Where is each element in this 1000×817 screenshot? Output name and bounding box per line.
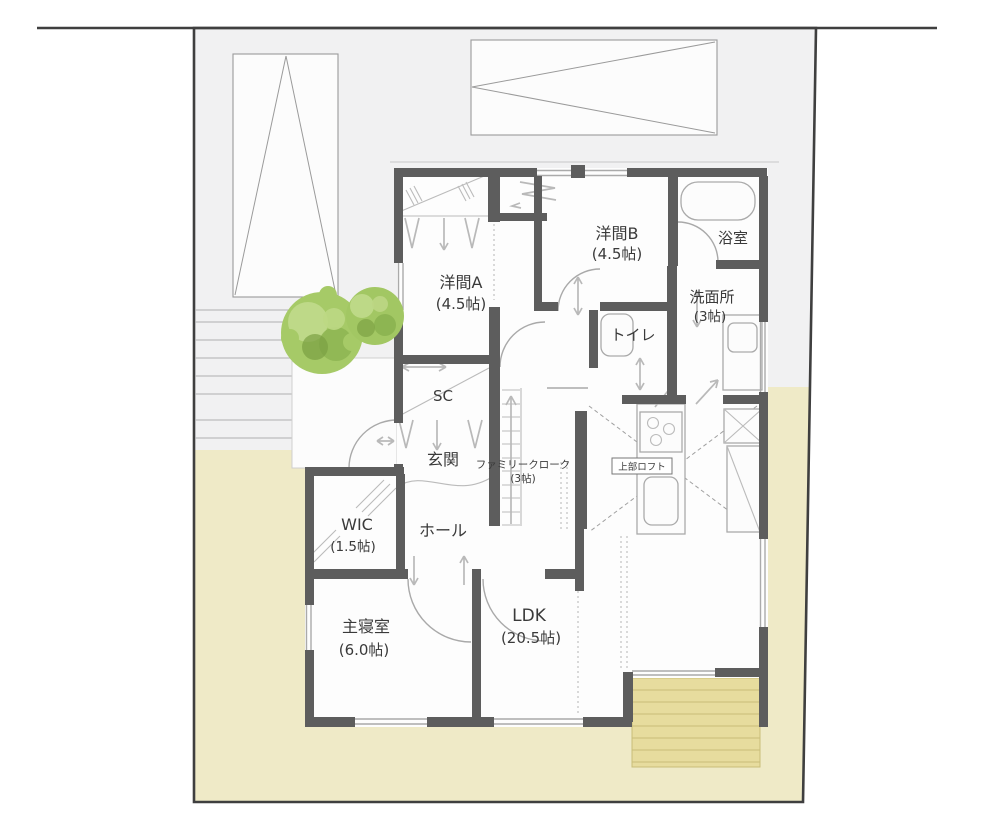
kitchen-sink	[644, 477, 678, 525]
stove	[640, 412, 682, 452]
cupboard	[727, 446, 760, 532]
room-size-washroom: (3帖)	[694, 309, 727, 325]
floor-plan-drawing: 洋間A (4.5帖) 洋間B (4.5帖) 浴室 洗面所 (3帖) トイレ SC…	[0, 0, 1000, 817]
room-label-hall: ホール	[419, 521, 467, 540]
room-label-bathroom: 浴室	[718, 229, 748, 247]
parking-space-vertical	[233, 54, 338, 297]
room-size-ldk: (20.5帖)	[501, 629, 561, 647]
room-label-wic: WIC	[341, 515, 373, 534]
room-label-toilet: トイレ	[610, 326, 655, 344]
room-label-sc: SC	[433, 387, 453, 405]
parking-space-horizontal	[471, 40, 717, 135]
room-label-washroom: 洗面所	[689, 288, 734, 306]
room-label-upper-loft: 上部ロフト	[618, 461, 666, 473]
room-size-yoma-a: (4.5帖)	[436, 295, 487, 313]
room-label-ldk: LDK	[512, 606, 547, 626]
room-label-entrance: 玄関	[427, 450, 459, 469]
loft-label-box: 上部ロフト	[612, 458, 672, 474]
tree-icon-small	[346, 287, 404, 345]
wood-deck	[632, 678, 760, 767]
room-label-yoma-b: 洋間B	[596, 224, 639, 243]
room-size-master-bedroom: (6.0帖)	[339, 641, 390, 659]
room-size-wic: (1.5帖)	[330, 539, 376, 555]
entrance-porch	[292, 358, 397, 468]
room-size-yoma-b: (4.5帖)	[592, 245, 643, 263]
refrigerator-space	[724, 409, 762, 443]
floor-plan-canvas: 洋間A (4.5帖) 洋間B (4.5帖) 浴室 洗面所 (3帖) トイレ SC…	[0, 0, 1000, 817]
room-label-yoma-a: 洋間A	[440, 273, 483, 292]
room-label-master-bedroom: 主寝室	[342, 617, 390, 636]
room-size-family-closet: (3帖)	[510, 472, 535, 485]
bathtub	[681, 182, 755, 220]
room-label-family-closet: ファミリークローク	[476, 459, 571, 471]
